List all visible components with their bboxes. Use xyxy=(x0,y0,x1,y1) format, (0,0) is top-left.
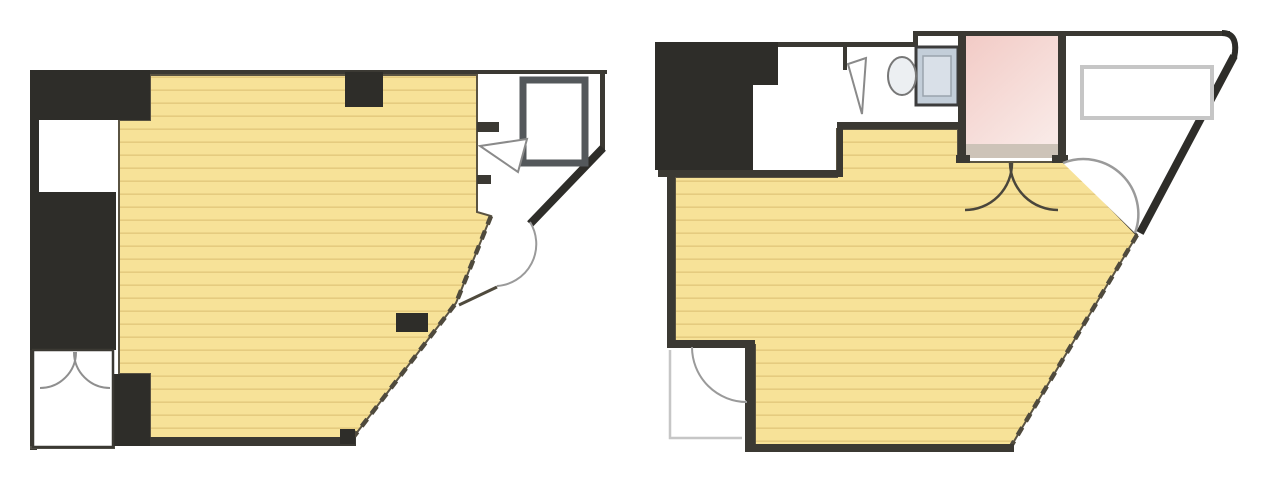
toilet-door-leaf xyxy=(848,58,866,114)
floor-plan-left xyxy=(30,70,607,450)
wall-stub-lower xyxy=(477,175,491,184)
diagonal-outer-wall-lower xyxy=(459,287,497,305)
black-block-bottom-left xyxy=(113,374,150,446)
rounded-corner-wall xyxy=(1222,33,1235,58)
small-gray-room xyxy=(523,80,585,163)
toilet-tank-inner xyxy=(923,56,951,96)
pink-room-left-wall xyxy=(958,33,966,162)
toilet-icon xyxy=(888,47,958,105)
toilet-room-left-wall xyxy=(843,44,847,70)
black-block-top-left xyxy=(655,42,778,170)
pink-door-stub-left xyxy=(956,155,970,163)
floor-plan-right xyxy=(655,31,1235,452)
entry-door-arc xyxy=(692,347,747,402)
floor-plan-sheet xyxy=(0,0,1280,489)
bottom-wall xyxy=(750,444,1014,452)
pink-room xyxy=(966,36,1058,156)
black-block-top-left xyxy=(30,70,150,120)
notch-right-wall xyxy=(745,340,755,452)
toilet-bowl xyxy=(888,57,916,95)
corner-block xyxy=(340,429,355,444)
pillar-top xyxy=(345,72,383,107)
main-room-left xyxy=(119,75,491,439)
white-shaft-room xyxy=(39,122,110,192)
pink-room-right-wall xyxy=(1058,33,1066,163)
corridor-wall-vertical xyxy=(837,122,843,177)
left-wall xyxy=(667,172,675,348)
door-leaf-triangle xyxy=(480,139,527,172)
wall-under-toilet-room xyxy=(837,122,962,129)
pink-room-base-strip xyxy=(966,144,1058,158)
door-swing-arc-diagonal xyxy=(497,222,536,286)
right-upper-wall xyxy=(600,72,605,150)
notch-top-wall xyxy=(667,340,755,348)
black-column-left xyxy=(30,192,116,350)
wall-under-block xyxy=(658,170,839,177)
wall-stub-upper xyxy=(477,122,499,132)
black-sliver-left xyxy=(30,118,39,196)
counter-outline xyxy=(1082,67,1212,118)
floor-plans-canvas xyxy=(0,0,1280,489)
pillar-diagonal xyxy=(396,313,428,332)
